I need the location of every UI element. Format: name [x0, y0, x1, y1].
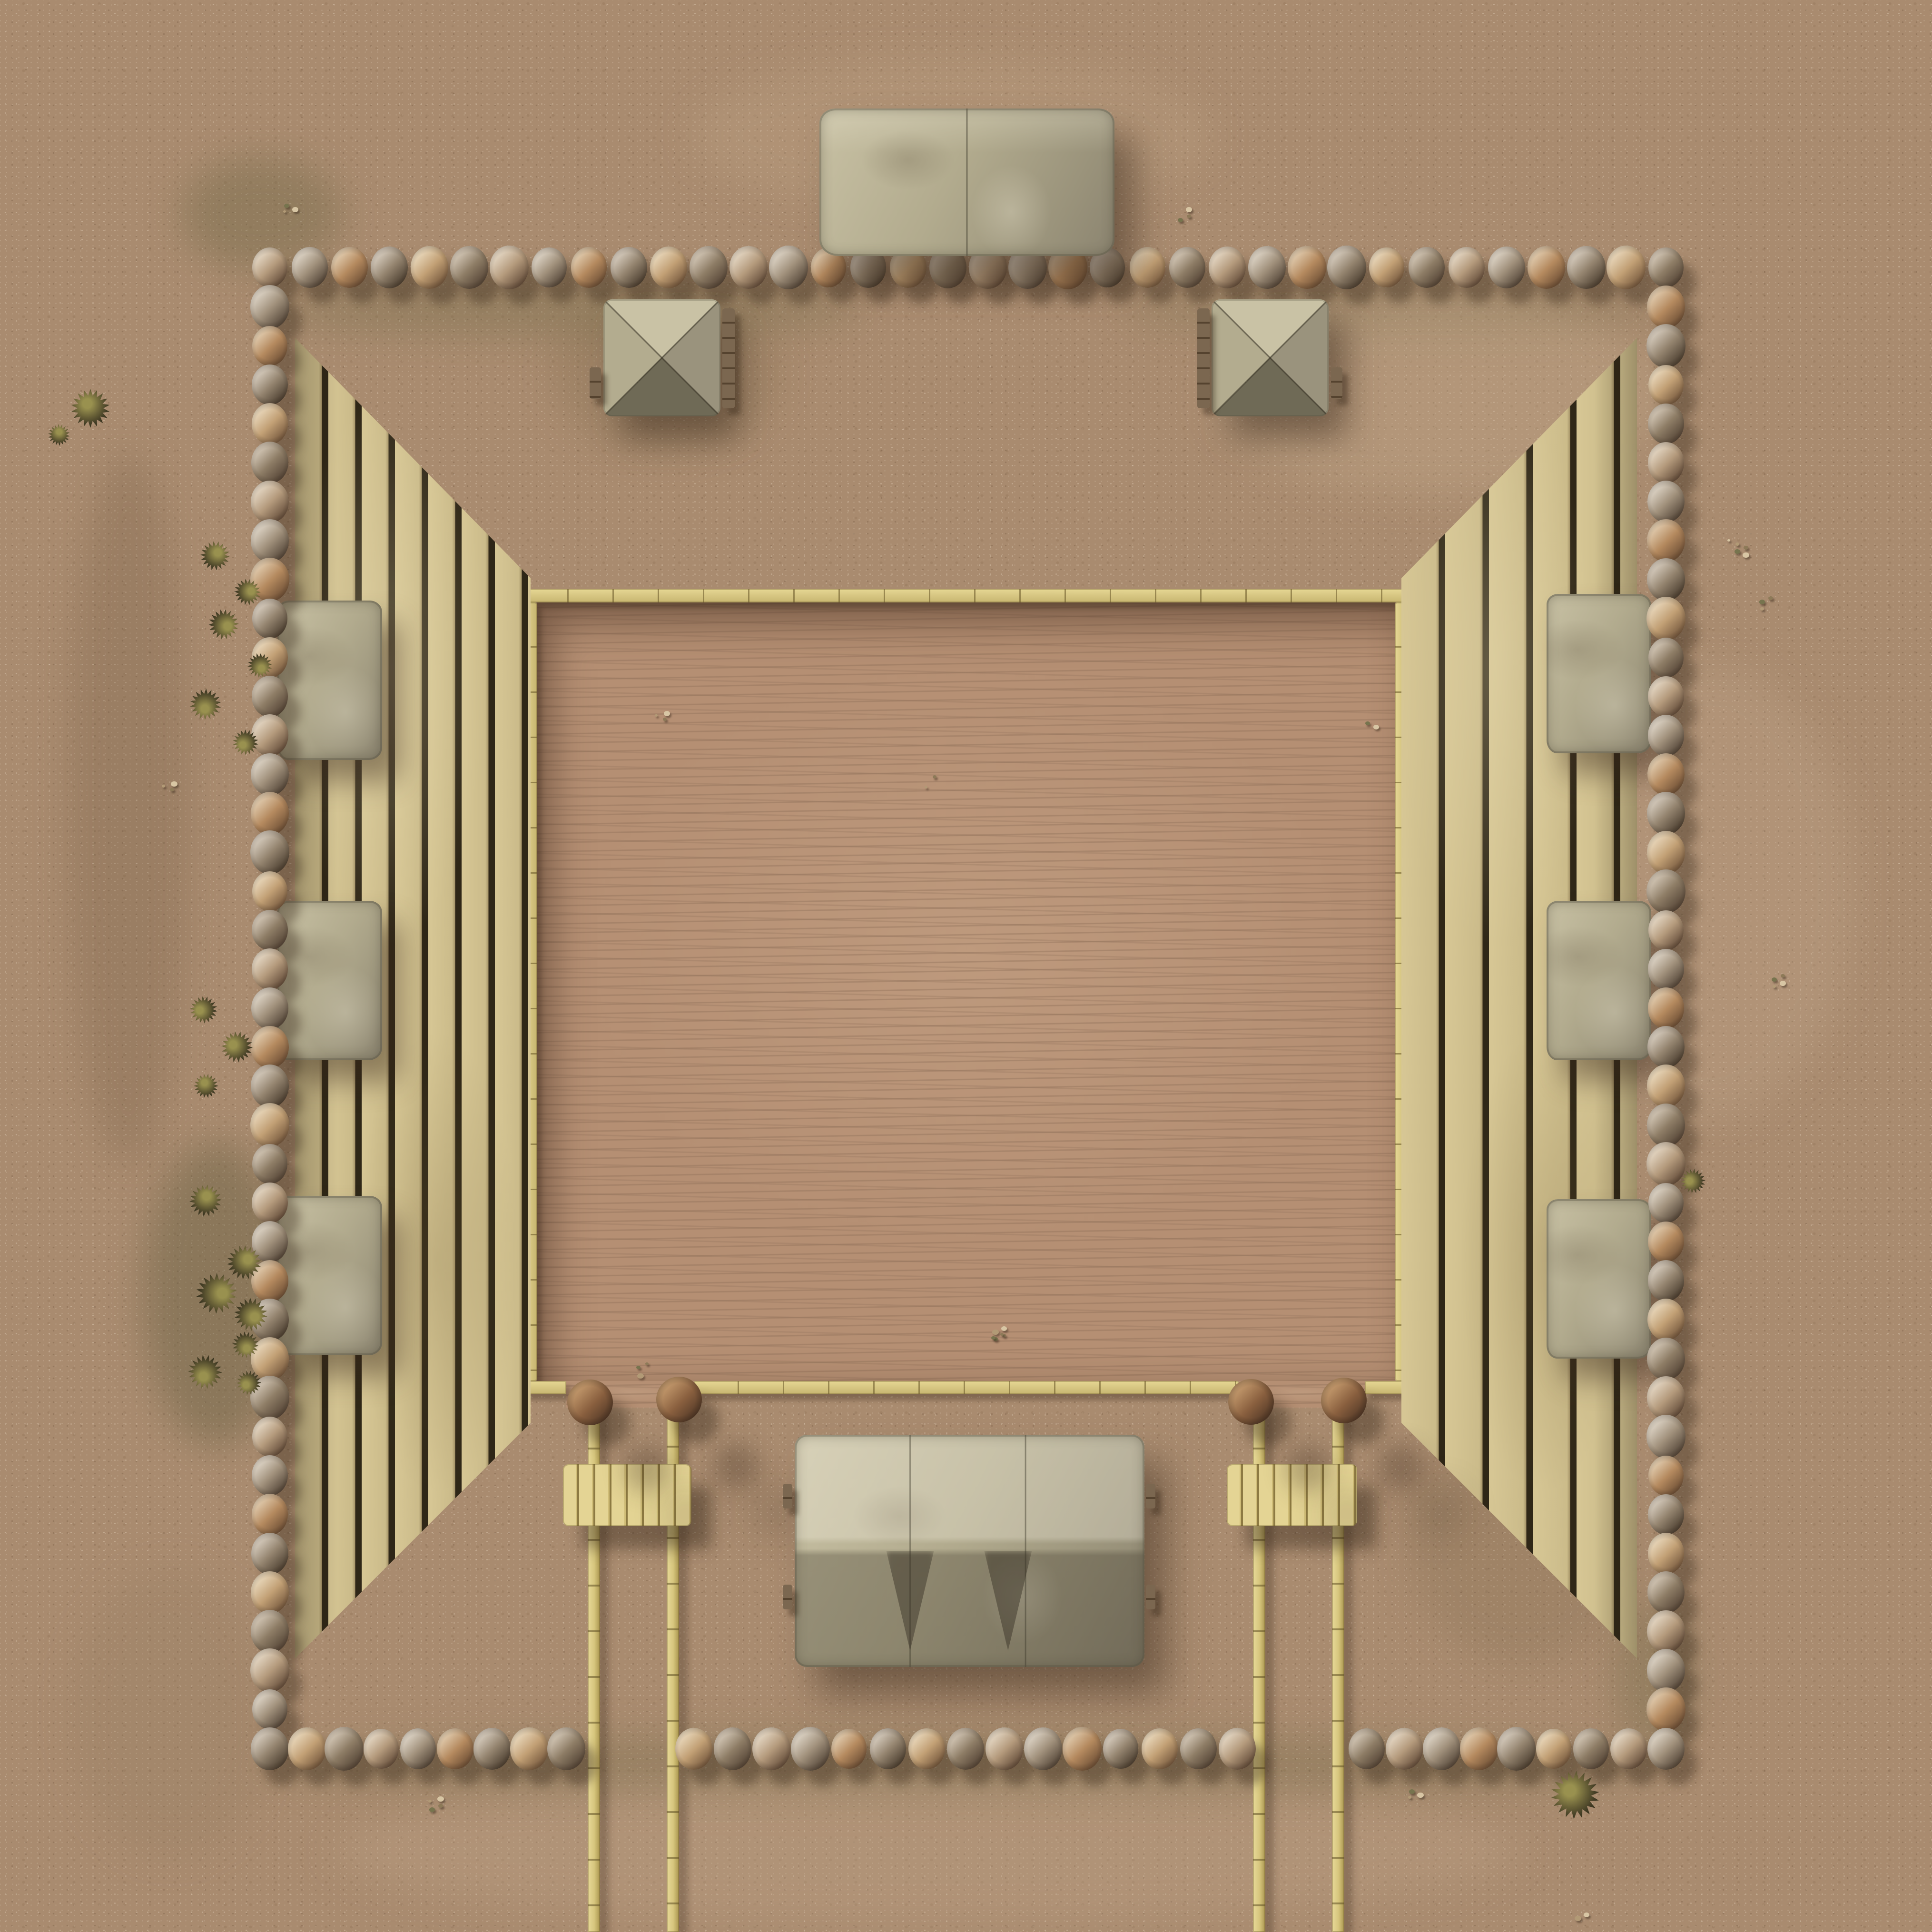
wall-boulder [1647, 1338, 1685, 1380]
wall-boulder [1647, 831, 1686, 874]
arena [523, 589, 1409, 1394]
wall-boulder [1573, 1728, 1609, 1769]
wall-boulder [690, 246, 727, 288]
wall-boulder [611, 247, 647, 288]
wall-boulder [411, 246, 448, 288]
side-tent-canvas [1547, 594, 1651, 753]
wall-boulder [547, 1727, 586, 1771]
wall-boulder [1647, 1728, 1685, 1770]
wall-boulder [1646, 324, 1686, 368]
wall-boulder [252, 1183, 287, 1223]
wall-boulder [252, 247, 287, 287]
wall-boulder [251, 1727, 288, 1770]
wall-boulder [1409, 247, 1444, 287]
pebble [437, 1796, 444, 1802]
side-tent-canvas [1547, 1199, 1651, 1359]
gate-pillar-boulder [656, 1377, 702, 1422]
ground-patch [71, 1570, 271, 1856]
pebble [645, 1362, 649, 1365]
ground-patch [266, 281, 861, 338]
pebble [1772, 977, 1777, 982]
wall-boulder [1647, 1065, 1685, 1107]
wall-boulder [1648, 404, 1684, 444]
wall-boulder [1648, 676, 1684, 717]
pebble [655, 714, 658, 717]
side-tent-canvas [1547, 901, 1651, 1060]
wall-boulder [1369, 247, 1404, 287]
wall-boulder [510, 1727, 548, 1770]
arena-curb-bottom [694, 1381, 1239, 1394]
wall-boulder [251, 714, 288, 756]
wall-boulder [1648, 949, 1684, 989]
wooden-bench [590, 367, 601, 399]
wall-boulder [908, 1728, 945, 1770]
pebble [429, 1807, 435, 1812]
wall-boulder [571, 247, 607, 287]
wall-boulder [252, 599, 287, 639]
wall-boulder [1648, 442, 1685, 483]
wall-boulder [675, 1728, 712, 1770]
pebble [933, 775, 936, 779]
wall-boulder [1130, 247, 1165, 287]
pebble [438, 1804, 443, 1808]
wall-boulder [251, 519, 289, 562]
wall-boulder [250, 1103, 289, 1147]
tent-pole-shadow [887, 1551, 934, 1651]
wall-boulder [947, 1728, 984, 1770]
pebble [1780, 981, 1786, 986]
wall-boulder [1460, 1727, 1498, 1771]
wall-boulder [1610, 1728, 1647, 1770]
wall-boulder [1209, 246, 1246, 288]
wall-boulder [1063, 1727, 1102, 1771]
wall-boulder [1497, 1727, 1536, 1771]
shrub [197, 538, 234, 574]
shrub [192, 1072, 220, 1100]
wall-boulder [1648, 1456, 1684, 1496]
pebble [1743, 552, 1749, 558]
pebble [284, 204, 289, 208]
wall-boulder [1647, 792, 1685, 834]
wall-boulder [1648, 247, 1684, 287]
side-tent-canvas [277, 901, 382, 1060]
ground-patch [67, 452, 190, 1166]
shrub [183, 682, 227, 726]
wall-boulder [1647, 1610, 1685, 1653]
wall-boulder [1349, 1728, 1385, 1770]
pebble [1186, 207, 1192, 212]
wall-boulder [400, 1728, 436, 1769]
wall-boulder [1646, 1415, 1686, 1459]
wall-boulder [371, 246, 408, 288]
wall-boulder [1248, 246, 1286, 288]
wall-boulder [250, 1648, 289, 1692]
wall-boulder [251, 792, 289, 835]
wall-boulder [252, 1455, 287, 1496]
pebble [1760, 607, 1764, 611]
wall-boulder [1647, 1299, 1685, 1341]
tent-pole-shadow [984, 1551, 1032, 1651]
wall-boulder [1607, 246, 1646, 289]
gate-pillar-boulder [567, 1380, 613, 1425]
wooden-bench [1331, 367, 1342, 399]
wall-boulder [1648, 1222, 1684, 1262]
wall-boulder [331, 247, 368, 288]
wall-boulder [251, 1337, 289, 1380]
pebble [1744, 546, 1748, 550]
pebble [1773, 985, 1776, 988]
south-pavilion-canvas [795, 1435, 1144, 1667]
pebble [1735, 549, 1740, 554]
wall-boulder [252, 365, 287, 405]
wall-boulder [1648, 715, 1685, 756]
wall-boulder [252, 1144, 287, 1184]
shrub [44, 420, 74, 450]
wall-boulder [729, 246, 768, 289]
pebble [1575, 1916, 1581, 1921]
pebble [1408, 1796, 1411, 1799]
pebble [1727, 539, 1730, 542]
wall-boulder [252, 403, 288, 444]
wall-boulder [1327, 246, 1366, 289]
wall-boulder [986, 1727, 1023, 1770]
wall-boulder [1648, 365, 1684, 405]
wall-boulder [1646, 597, 1686, 641]
gate-platform [563, 1464, 691, 1526]
tent-stake-toggle [1146, 1484, 1155, 1508]
wall-boulder [1647, 519, 1685, 562]
pyramid-tent-canvas [1212, 299, 1329, 416]
side-tent-canvas [277, 601, 382, 760]
wall-boulder [252, 871, 287, 911]
wall-boulder [325, 1727, 364, 1771]
wall-boulder [1647, 1104, 1686, 1147]
wall-boulder [1449, 247, 1485, 288]
gate-platform [1227, 1464, 1357, 1526]
wall-boulder [1647, 286, 1686, 329]
battle-map [0, 0, 1932, 1932]
north-awning-canvas [819, 108, 1114, 256]
wooden-bench [722, 308, 735, 408]
tent-stake-toggle [783, 1484, 792, 1508]
pebble [1417, 1793, 1424, 1798]
gate-pillar-boulder [1321, 1378, 1367, 1423]
wall-boulder [252, 1494, 288, 1535]
wall-boulder [1488, 246, 1525, 288]
wall-boulder [1648, 1533, 1685, 1574]
wall-boulder [831, 1729, 867, 1769]
wall-boulder [1648, 638, 1684, 678]
wall-boulder [1647, 1649, 1686, 1692]
pebble [1759, 600, 1765, 604]
wall-boulder [251, 753, 288, 796]
pebble [663, 718, 667, 721]
wall-boulder [250, 285, 289, 329]
wall-boulder [714, 1727, 751, 1770]
wall-boulder [1647, 1376, 1686, 1419]
wall-boulder [1567, 246, 1606, 289]
pebble [1178, 218, 1183, 222]
wall-boulder [1219, 1728, 1256, 1770]
wall-boulder [791, 1727, 830, 1771]
gate-pillar-boulder [1228, 1379, 1274, 1425]
wall-boulder [1647, 481, 1685, 522]
pyramid-tent-canvas [603, 299, 720, 416]
wall-boulder [250, 830, 289, 874]
wall-boulder [1647, 1026, 1685, 1068]
wall-boulder [1423, 1727, 1460, 1770]
wall-boulder [1648, 910, 1684, 950]
wall-boulder [650, 246, 687, 288]
wall-boulder [1647, 558, 1686, 601]
pebble [1735, 542, 1739, 546]
pebble [1584, 1912, 1589, 1917]
pebble [664, 711, 670, 716]
wall-boulder [1648, 1260, 1685, 1301]
wall-boulder [252, 326, 287, 366]
wall-boulder [251, 481, 288, 523]
wall-boulder [437, 1728, 473, 1770]
wall-boulder [769, 246, 808, 289]
pebble [283, 210, 286, 213]
wall-boulder [1180, 1728, 1217, 1770]
wall-boulder [1103, 1729, 1138, 1769]
shrub [203, 603, 245, 645]
pebble [925, 786, 927, 789]
pebble [1001, 1326, 1007, 1331]
wall-boulder [1386, 1728, 1423, 1770]
wall-boulder [251, 442, 288, 483]
pebble [1187, 215, 1191, 218]
wall-boulder [1536, 1729, 1571, 1769]
shrub [71, 389, 110, 428]
wall-boulder [292, 247, 327, 287]
side-tent-canvas [277, 1196, 382, 1355]
wall-boulder [252, 676, 288, 717]
wall-boulder [1288, 246, 1326, 289]
wall-boulder [1648, 987, 1685, 1029]
wooden-bench [1197, 308, 1210, 408]
pebble [1768, 596, 1773, 600]
pebble [1409, 1789, 1415, 1794]
wall-boulder [473, 1728, 511, 1770]
wall-boulder [1169, 247, 1206, 288]
wall-boulder [252, 948, 288, 990]
wall-boulder [1648, 1183, 1684, 1223]
shrub [185, 991, 222, 1028]
wall-boulder [252, 1417, 287, 1457]
wall-boulder [1646, 869, 1686, 913]
wall-boulder [251, 1065, 289, 1108]
wall-boulder [1647, 1571, 1685, 1613]
wall-boulder [251, 1610, 289, 1653]
wall-boulder [1646, 1142, 1686, 1186]
wall-boulder [251, 1533, 288, 1575]
tent-stake-toggle [783, 1585, 792, 1609]
wall-boulder [1646, 1687, 1686, 1731]
wall-boulder [532, 247, 567, 287]
wall-boulder [252, 910, 287, 950]
wall-boulder [490, 246, 529, 289]
wall-boulder [870, 1728, 906, 1769]
wall-boulder [252, 1689, 287, 1729]
wall-boulder [1647, 753, 1685, 795]
tent-stake-toggle [1146, 1585, 1155, 1609]
wall-boulder [251, 1026, 288, 1068]
wall-boulder [251, 1571, 288, 1614]
ground-patch [333, 1780, 1523, 1922]
wall-boulder [1142, 1728, 1177, 1769]
wall-boulder [288, 1727, 326, 1771]
pebble [1000, 1333, 1004, 1336]
wall-boulder [1528, 246, 1565, 288]
wall-boulder [1648, 1494, 1684, 1535]
pebble [1373, 725, 1379, 729]
arena-curb-top [523, 589, 1409, 602]
wall-boulder [364, 1729, 399, 1769]
pebble [292, 207, 298, 212]
pebble [428, 1800, 432, 1803]
pebble [162, 785, 165, 788]
wall-boulder [251, 987, 288, 1029]
